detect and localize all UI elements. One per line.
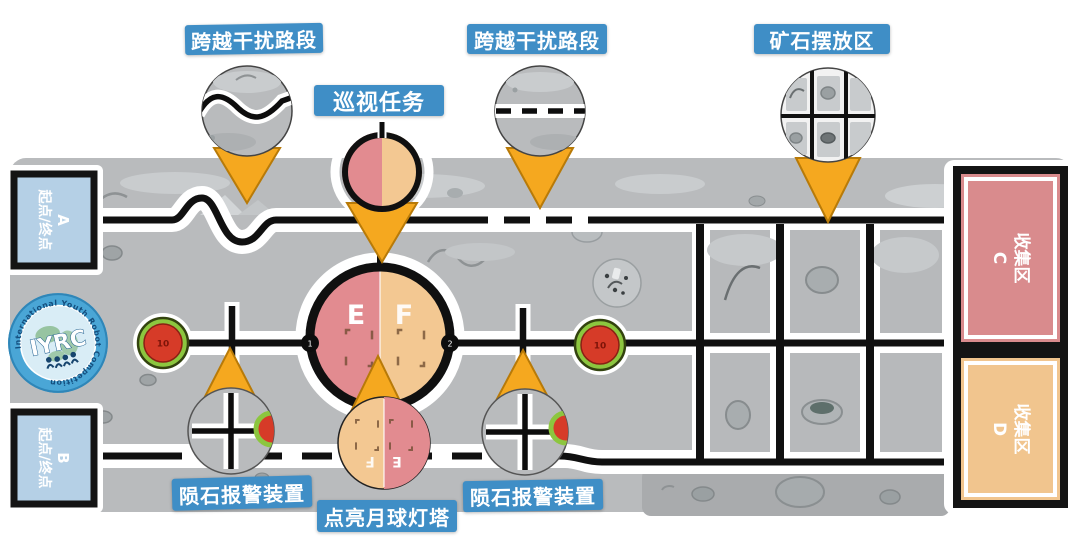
zone-d-letter: D <box>989 422 1009 436</box>
start-zone-a <box>14 174 94 266</box>
ore-stone <box>726 401 750 429</box>
magnifier-wavy-road <box>198 66 296 156</box>
ring-letter-f: F <box>395 300 413 331</box>
iyrc-logo: International Youth Robot Competition IY… <box>0 281 120 404</box>
field-drawing: A 起点/终点 B 起点/终点 收集区 C 收集区 D E F <box>0 0 1080 557</box>
label-ore-placement-area: 矿石摆放区 <box>754 24 890 54</box>
zone-b-letter: B <box>54 452 72 463</box>
lighthouse-letter-f: F <box>365 453 375 469</box>
meteor-alarm-right: 10 <box>575 320 625 370</box>
zone-a-letter: A <box>54 214 72 226</box>
zone-a-name: 起点/终点 <box>36 188 53 250</box>
zone-b-name: 起点/终点 <box>36 426 53 488</box>
lighthouse-letter-e: E <box>392 453 402 469</box>
zone-d-name: 收集区 <box>1011 404 1032 455</box>
label-cross-interference-1: 跨越干扰路段 <box>185 23 324 55</box>
meteor-alarm-left: 10 <box>138 318 188 368</box>
label-meteor-alarm-right: 陨石报警装置 <box>463 479 604 512</box>
zone-c-name: 收集区 <box>1011 233 1032 284</box>
collect-zone-d <box>957 354 1064 504</box>
label-light-lighthouse: 点亮月球灯塔 <box>317 500 457 532</box>
junction-node-1-label: 1 <box>307 340 312 349</box>
junction-node-2-label: 2 <box>447 340 452 349</box>
zone-c-letter: C <box>989 252 1009 264</box>
magnifier-ore-grid <box>780 66 876 164</box>
magnifier-dashed-road <box>494 66 586 156</box>
moon-rover-decoration <box>593 259 641 307</box>
collect-zone-c <box>957 170 1064 346</box>
ore-stone <box>806 267 838 293</box>
label-cross-interference-2: 跨越干扰路段 <box>467 24 607 54</box>
label-meteor-alarm-left: 陨石报警装置 <box>172 475 313 511</box>
start-zone-b <box>14 412 94 504</box>
alarm-left-value: 10 <box>157 340 170 350</box>
competition-field-map: A 起点/终点 B 起点/终点 收集区 C 收集区 D E F <box>0 0 1080 557</box>
alarm-right-value: 10 <box>594 342 607 352</box>
ring-letter-e: E <box>347 300 365 331</box>
label-patrol-task: 巡视任务 <box>314 85 444 116</box>
